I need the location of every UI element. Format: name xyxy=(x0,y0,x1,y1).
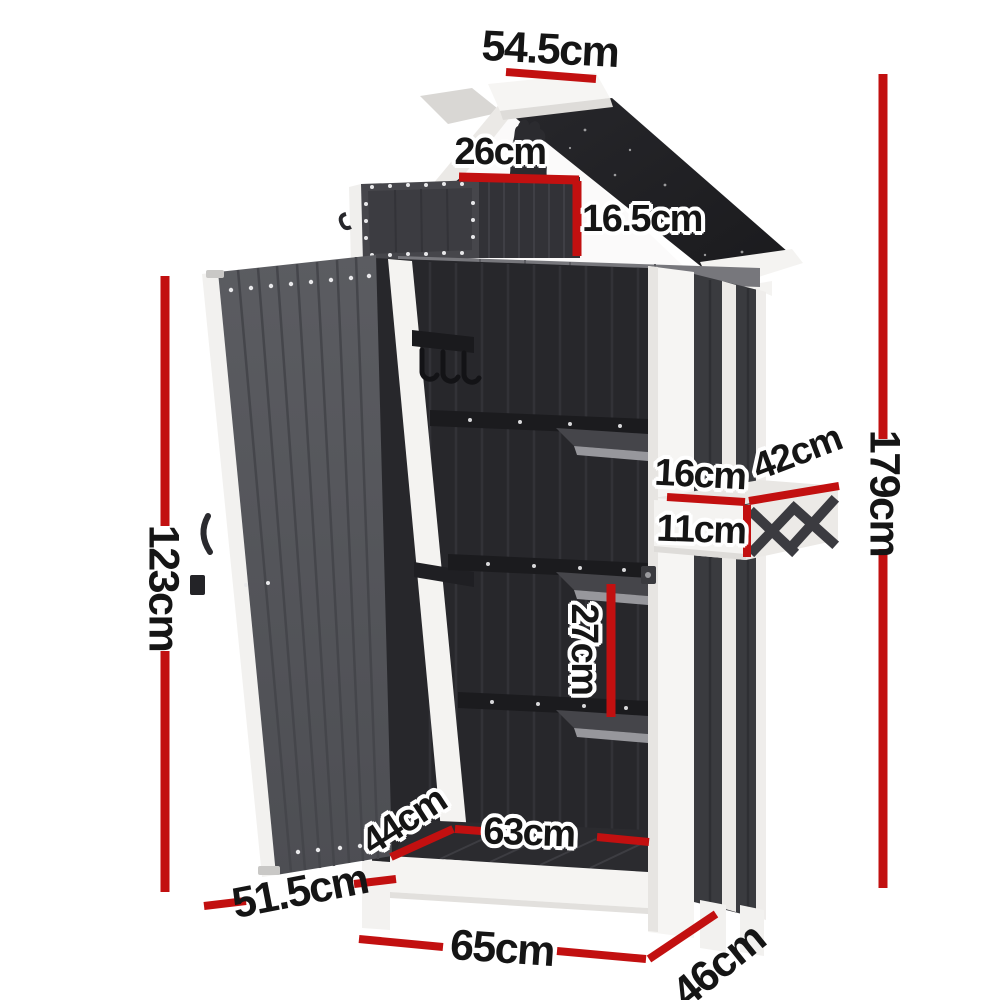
dimension-diagram: 54.5cm 26cm 16.5cm 123cm 179cm 16cm 42cm… xyxy=(0,0,1000,1000)
dim-overall-height-label: 179cm xyxy=(863,430,906,556)
right-side-wall xyxy=(694,274,766,956)
dim-line-base-width-right xyxy=(557,951,646,959)
front-right-post-shade xyxy=(648,266,658,932)
dim-door-height-label: 123cm xyxy=(142,525,185,651)
dim-planter-depth-label: 16cm xyxy=(653,454,746,497)
dim-niche-width-label: 26cm xyxy=(454,133,545,171)
dim-shelf-gap-label: 27cm xyxy=(565,603,603,694)
dim-base-width-label: 65cm xyxy=(449,924,556,974)
mini-door-latch xyxy=(341,214,351,228)
main-door-group xyxy=(190,255,392,877)
dim-niche-height-label: 16.5cm xyxy=(582,200,702,238)
dim-roof-width-label: 54.5cm xyxy=(481,25,620,75)
dim-planter-height-label: 11cm xyxy=(656,509,746,550)
dim-floor-width-label: 63cm xyxy=(483,812,575,853)
mini-door-inner xyxy=(368,188,472,254)
door-handle xyxy=(203,516,210,552)
mini-door-edge xyxy=(349,184,363,264)
dim-line-base-width-left xyxy=(359,939,443,947)
door-hinge-top xyxy=(206,270,224,278)
door-latch-pin xyxy=(645,572,651,578)
door-lock xyxy=(190,575,205,595)
dim-line-niche-width xyxy=(459,177,579,180)
dim-line-floor-width-right xyxy=(597,837,649,842)
